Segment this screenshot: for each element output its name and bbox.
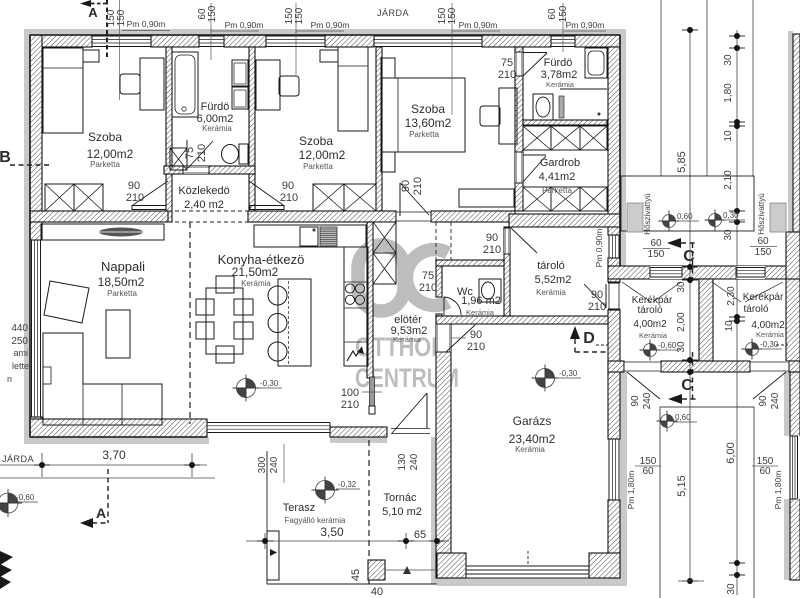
svg-text:210: 210 (412, 177, 424, 195)
svg-text:1,96 m2: 1,96 m2 (461, 295, 501, 307)
svg-text:Pm 1,80m: Pm 1,80m (626, 471, 636, 510)
svg-text:250: 250 (11, 336, 28, 347)
svg-text:Szoba: Szoba (299, 134, 333, 148)
svg-text:Kerékpár: Kerékpár (743, 292, 784, 303)
svg-text:Parketta: Parketta (90, 160, 120, 169)
svg-text:21,50m2: 21,50m2 (232, 265, 279, 279)
svg-text:-0,60: -0,60 (16, 493, 35, 502)
svg-text:12,00m2: 12,00m2 (87, 147, 134, 161)
svg-text:30: 30 (726, 583, 737, 595)
svg-text:240: 240 (770, 392, 781, 409)
svg-text:60: 60 (757, 236, 769, 247)
svg-text:210: 210 (419, 282, 437, 294)
svg-text:n: n (7, 374, 12, 384)
svg-text:210: 210 (341, 399, 359, 411)
svg-text:Parketta: Parketta (107, 289, 137, 298)
svg-text:2,40 m2: 2,40 m2 (184, 199, 224, 211)
svg-text:Közlekedö: Közlekedö (178, 185, 229, 197)
svg-text:Kerámia: Kerámia (202, 124, 232, 133)
svg-text:10: 10 (724, 320, 735, 332)
svg-text:10: 10 (723, 130, 734, 142)
svg-text:4,00m2: 4,00m2 (633, 319, 667, 330)
svg-text:90: 90 (128, 180, 140, 192)
svg-text:3,70: 3,70 (102, 448, 126, 462)
svg-text:210: 210 (483, 244, 501, 256)
svg-text:90: 90 (470, 329, 482, 341)
svg-text:2,10: 2,10 (723, 170, 734, 190)
svg-text:Kerámia: Kerámia (536, 288, 566, 297)
svg-text:Pm 0,90m: Pm 0,90m (459, 20, 498, 30)
svg-text:5,52m2: 5,52m2 (535, 274, 572, 286)
svg-text:Kerámia: Kerámia (241, 279, 271, 288)
svg-text:90: 90 (400, 180, 412, 192)
svg-text:Garázs: Garázs (513, 414, 552, 428)
svg-text:Parketta: Parketta (409, 130, 439, 139)
svg-text:75: 75 (422, 270, 434, 282)
svg-text:30: 30 (723, 54, 734, 66)
svg-text:3,50: 3,50 (320, 525, 344, 539)
svg-text:210: 210 (280, 192, 298, 204)
svg-text:65: 65 (414, 529, 426, 541)
svg-text:-0,32: -0,32 (338, 480, 357, 489)
svg-text:240: 240 (642, 392, 653, 409)
svg-text:-0,30: -0,30 (260, 379, 279, 388)
svg-text:130: 130 (397, 453, 408, 470)
svg-text:90: 90 (486, 232, 498, 244)
svg-text:150: 150 (755, 247, 772, 258)
svg-text:6,00: 6,00 (725, 442, 737, 463)
svg-text:JÁRDA: JÁRDA (2, 454, 34, 464)
svg-text:30: 30 (676, 281, 687, 293)
svg-text:150: 150 (294, 7, 305, 24)
svg-text:-0,60: -0,60 (658, 341, 677, 350)
svg-text:Terasz: Terasz (283, 502, 315, 514)
svg-text:-0,30: -0,30 (760, 340, 779, 349)
svg-text:Kerámia: Kerámia (639, 331, 668, 340)
svg-text:Fürdö: Fürdö (544, 57, 573, 69)
svg-text:Nappali: Nappali (101, 259, 145, 274)
svg-text:2,30: 2,30 (726, 286, 737, 306)
svg-text:75: 75 (501, 57, 513, 69)
svg-text:90: 90 (758, 395, 769, 407)
svg-text:5,85: 5,85 (676, 151, 688, 172)
svg-text:C: C (681, 377, 693, 394)
svg-text:Pm 0,90m: Pm 0,90m (566, 20, 605, 30)
svg-text:90: 90 (630, 395, 641, 407)
svg-text:A: A (96, 505, 106, 521)
svg-text:5,15: 5,15 (676, 475, 688, 496)
svg-text:Pm 0,90m: Pm 0,90m (311, 20, 350, 30)
svg-text:tároló: tároló (637, 305, 662, 316)
svg-text:Szoba: Szoba (411, 102, 445, 116)
svg-text:Pm 0,90m: Pm 0,90m (594, 229, 604, 268)
svg-text:210: 210 (467, 341, 485, 353)
svg-text:Pm 0,90m: Pm 0,90m (127, 19, 166, 29)
svg-text:240: 240 (269, 456, 280, 473)
svg-text:0,60: 0,60 (677, 212, 693, 221)
svg-text:Pm 0,90m: Pm 0,90m (225, 20, 264, 30)
svg-text:Tornác: Tornác (383, 492, 417, 504)
svg-text:Hőszivattyú: Hőszivattyú (643, 193, 652, 234)
svg-text:45: 45 (350, 569, 362, 581)
svg-text:D: D (583, 330, 595, 347)
svg-text:150: 150 (116, 9, 127, 26)
svg-text:60: 60 (642, 466, 654, 477)
svg-text:0,60: 0,60 (675, 413, 691, 422)
svg-text:Parketta: Parketta (303, 162, 333, 171)
svg-text:210: 210 (126, 192, 144, 204)
svg-text:Fürdö: Fürdö (201, 101, 230, 113)
svg-text:18,50m2: 18,50m2 (98, 275, 145, 289)
svg-text:75: 75 (184, 147, 196, 159)
svg-text:150: 150 (207, 5, 218, 22)
svg-text:JÁRDA: JÁRDA (377, 8, 409, 18)
svg-text:Kerámia: Kerámia (393, 335, 422, 344)
svg-text:300: 300 (257, 456, 268, 473)
svg-text:40: 40 (371, 586, 383, 598)
svg-text:60: 60 (650, 238, 662, 249)
svg-text:5,10 m2: 5,10 m2 (382, 506, 422, 518)
svg-text:1,80: 1,80 (723, 83, 734, 103)
svg-text:Kerámia: Kerámia (515, 445, 545, 454)
svg-text:Kerámia: Kerámia (546, 80, 575, 89)
svg-text:Fagyálló kerámia: Fagyálló kerámia (285, 516, 346, 525)
svg-text:ami: ami (13, 348, 28, 358)
svg-text:Parketta: Parketta (542, 186, 572, 195)
svg-text:13,60m2: 13,60m2 (405, 116, 452, 130)
svg-text:Pm 1,80m: Pm 1,80m (773, 471, 783, 510)
svg-text:60: 60 (759, 466, 771, 477)
svg-text:C: C (683, 248, 695, 265)
svg-text:90: 90 (591, 289, 603, 301)
svg-text:60: 60 (547, 8, 558, 20)
svg-text:B: B (0, 149, 11, 166)
svg-text:Kerámia: Kerámia (466, 308, 495, 317)
svg-text:12,00m2: 12,00m2 (299, 148, 346, 162)
svg-text:Kerámia: Kerámia (756, 330, 785, 339)
svg-text:lette: lette (12, 361, 29, 371)
svg-text:210: 210 (196, 144, 208, 162)
svg-text:4,41m2: 4,41m2 (539, 171, 576, 183)
svg-text:Szoba: Szoba (88, 130, 122, 144)
svg-text:240: 240 (409, 453, 420, 470)
svg-text:tároló: tároló (537, 260, 565, 272)
svg-text:150: 150 (648, 249, 665, 260)
svg-text:150: 150 (447, 7, 458, 24)
svg-text:210: 210 (498, 69, 516, 81)
svg-text:-0,30: -0,30 (559, 369, 578, 378)
svg-text:30: 30 (723, 229, 734, 241)
svg-text:440: 440 (11, 323, 28, 334)
svg-text:Hőszivattyú: Hőszivattyú (757, 193, 766, 234)
svg-text:2,00: 2,00 (676, 312, 687, 332)
svg-text:0,30: 0,30 (723, 211, 739, 220)
svg-text:210: 210 (588, 301, 606, 313)
svg-text:A: A (88, 5, 98, 20)
svg-text:23,40m2: 23,40m2 (509, 432, 556, 446)
svg-text:90: 90 (282, 180, 294, 192)
svg-text:30: 30 (676, 341, 687, 353)
svg-text:tároló: tároló (743, 304, 768, 315)
svg-text:100: 100 (341, 387, 359, 399)
svg-text:Gardrob: Gardrob (540, 157, 580, 169)
